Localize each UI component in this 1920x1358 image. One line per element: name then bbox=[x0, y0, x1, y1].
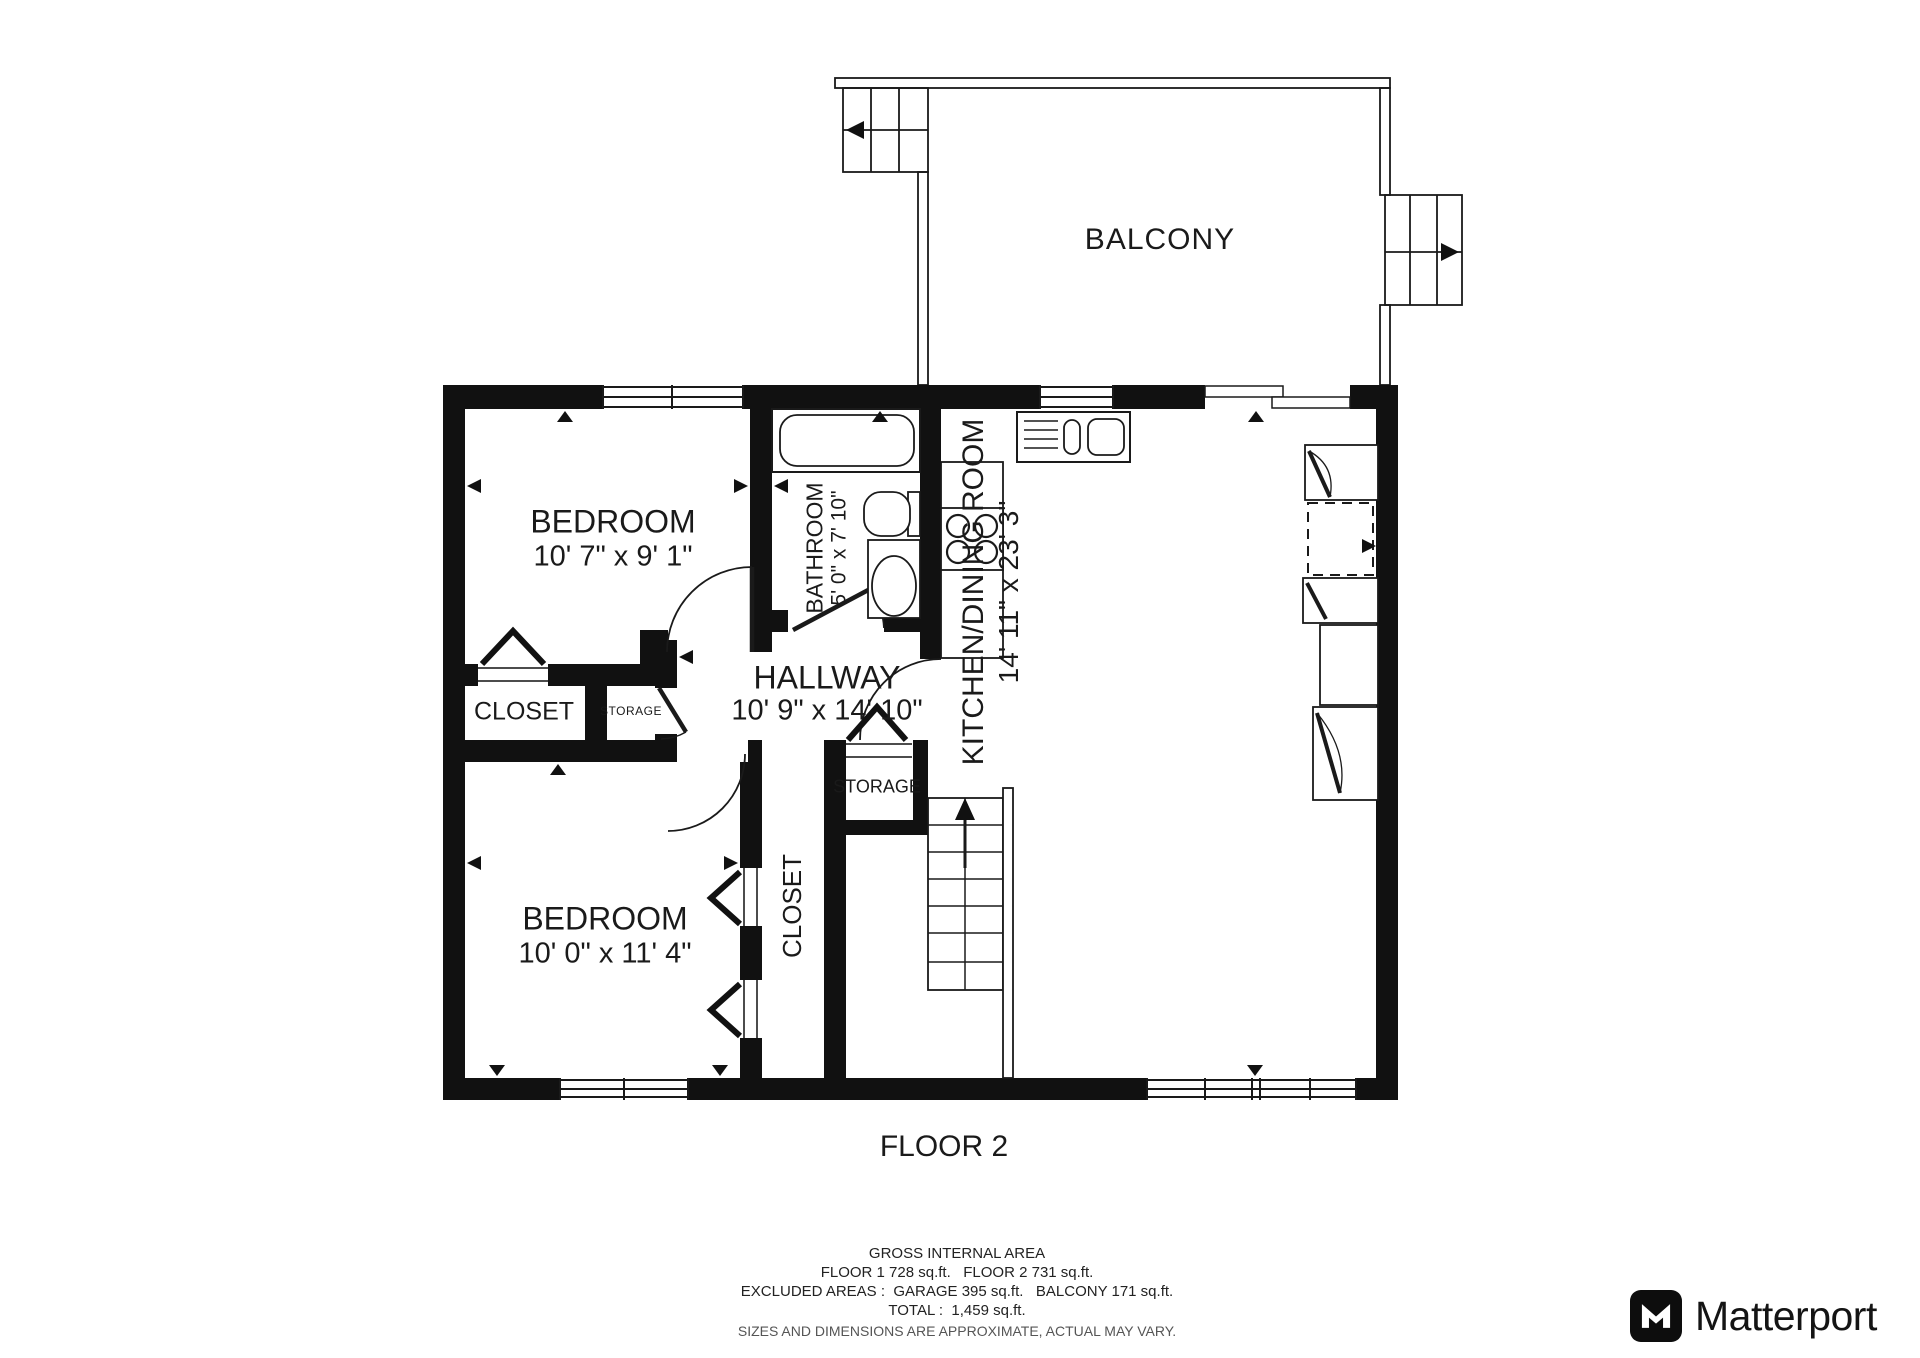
matterport-logo-text: Matterport bbox=[1695, 1293, 1877, 1340]
bedroom-bottom-dimensions: 10' 0" x 11' 4" bbox=[518, 937, 691, 970]
closet-lower-bifold-1 bbox=[711, 868, 762, 926]
floor-plan-page: BALCONY BEDROOM 10' 7" x 9' 1" BATHROOM … bbox=[0, 0, 1920, 1358]
closet-upper-bifold bbox=[478, 631, 548, 686]
bedroom-top-window bbox=[603, 385, 743, 409]
dining-windows bbox=[1147, 1078, 1356, 1100]
balcony-stairs-left bbox=[843, 88, 928, 172]
hallway-label: HALLWAY bbox=[754, 660, 901, 697]
storage-lower-label: STORAGE bbox=[833, 777, 921, 798]
balcony-sliding-door bbox=[1205, 385, 1350, 409]
area-summary-excluded: EXCLUDED AREAS : GARAGE 395 sq.ft. BALCO… bbox=[738, 1282, 1176, 1301]
matterport-logo-icon bbox=[1630, 1290, 1682, 1342]
area-summary: GROSS INTERNAL AREA FLOOR 1 728 sq.ft. F… bbox=[738, 1244, 1176, 1341]
matterport-logo: Matterport bbox=[1630, 1290, 1877, 1342]
toilet-icon bbox=[868, 540, 920, 618]
kitchen-dining-dimensions: 14' 11" x 23' 3" bbox=[992, 419, 1026, 766]
bedroom-bottom-label: BEDROOM bbox=[522, 901, 687, 938]
bedroom-top-door bbox=[667, 567, 752, 652]
kitchen-label-block: KITCHEN/DINING ROOM 14' 11" x 23' 3" bbox=[956, 419, 1026, 766]
stairs-direction-arrow-left bbox=[846, 121, 864, 139]
kitchen-sink-icon bbox=[1017, 412, 1130, 462]
bathroom-sink-icon bbox=[864, 492, 920, 536]
bathroom-label: BATHROOM bbox=[802, 482, 828, 613]
stair-railing bbox=[1003, 788, 1013, 1078]
kitchen-dining-label: KITCHEN/DINING ROOM bbox=[956, 419, 992, 766]
bedroom-bottom-door bbox=[668, 754, 745, 831]
area-summary-floors: FLOOR 1 728 sq.ft. FLOOR 2 731 sq.ft. bbox=[738, 1263, 1176, 1282]
bedroom-top-dimensions: 10' 7" x 9' 1" bbox=[533, 540, 692, 573]
kitchen-window bbox=[1040, 385, 1113, 409]
area-summary-disclaimer: SIZES AND DIMENSIONS ARE APPROXIMATE, AC… bbox=[738, 1322, 1176, 1341]
balcony-label: BALCONY bbox=[1085, 223, 1235, 258]
closet-lower-bifold-2 bbox=[711, 980, 762, 1038]
area-summary-title: GROSS INTERNAL AREA bbox=[738, 1244, 1176, 1263]
closet-lower-label: CLOSET bbox=[778, 854, 808, 958]
bathroom-dimensions: 5' 0" x 7' 10" bbox=[828, 482, 852, 613]
closet-upper-label: CLOSET bbox=[474, 698, 574, 727]
bathtub-icon bbox=[772, 409, 920, 472]
area-summary-total: TOTAL : 1,459 sq.ft. bbox=[738, 1301, 1176, 1320]
bathroom-label-block: BATHROOM 5' 0" x 7' 10" bbox=[802, 482, 853, 613]
stairs-down bbox=[928, 788, 1013, 1078]
appliance-dashed-outline bbox=[1308, 503, 1373, 575]
bedroom-top-label: BEDROOM bbox=[530, 504, 695, 541]
stairs-direction-arrow-right bbox=[1441, 243, 1459, 261]
hallway-dimensions: 10' 9" x 14' 10" bbox=[731, 694, 922, 727]
floor-title: FLOOR 2 bbox=[880, 1130, 1008, 1165]
balcony-stairs-right bbox=[1385, 195, 1462, 305]
bedroom-bottom-window bbox=[560, 1078, 688, 1100]
cabinet-icons bbox=[1303, 445, 1378, 800]
storage-upper-door bbox=[659, 688, 686, 739]
storage-upper-label: STORAGE bbox=[600, 705, 662, 719]
